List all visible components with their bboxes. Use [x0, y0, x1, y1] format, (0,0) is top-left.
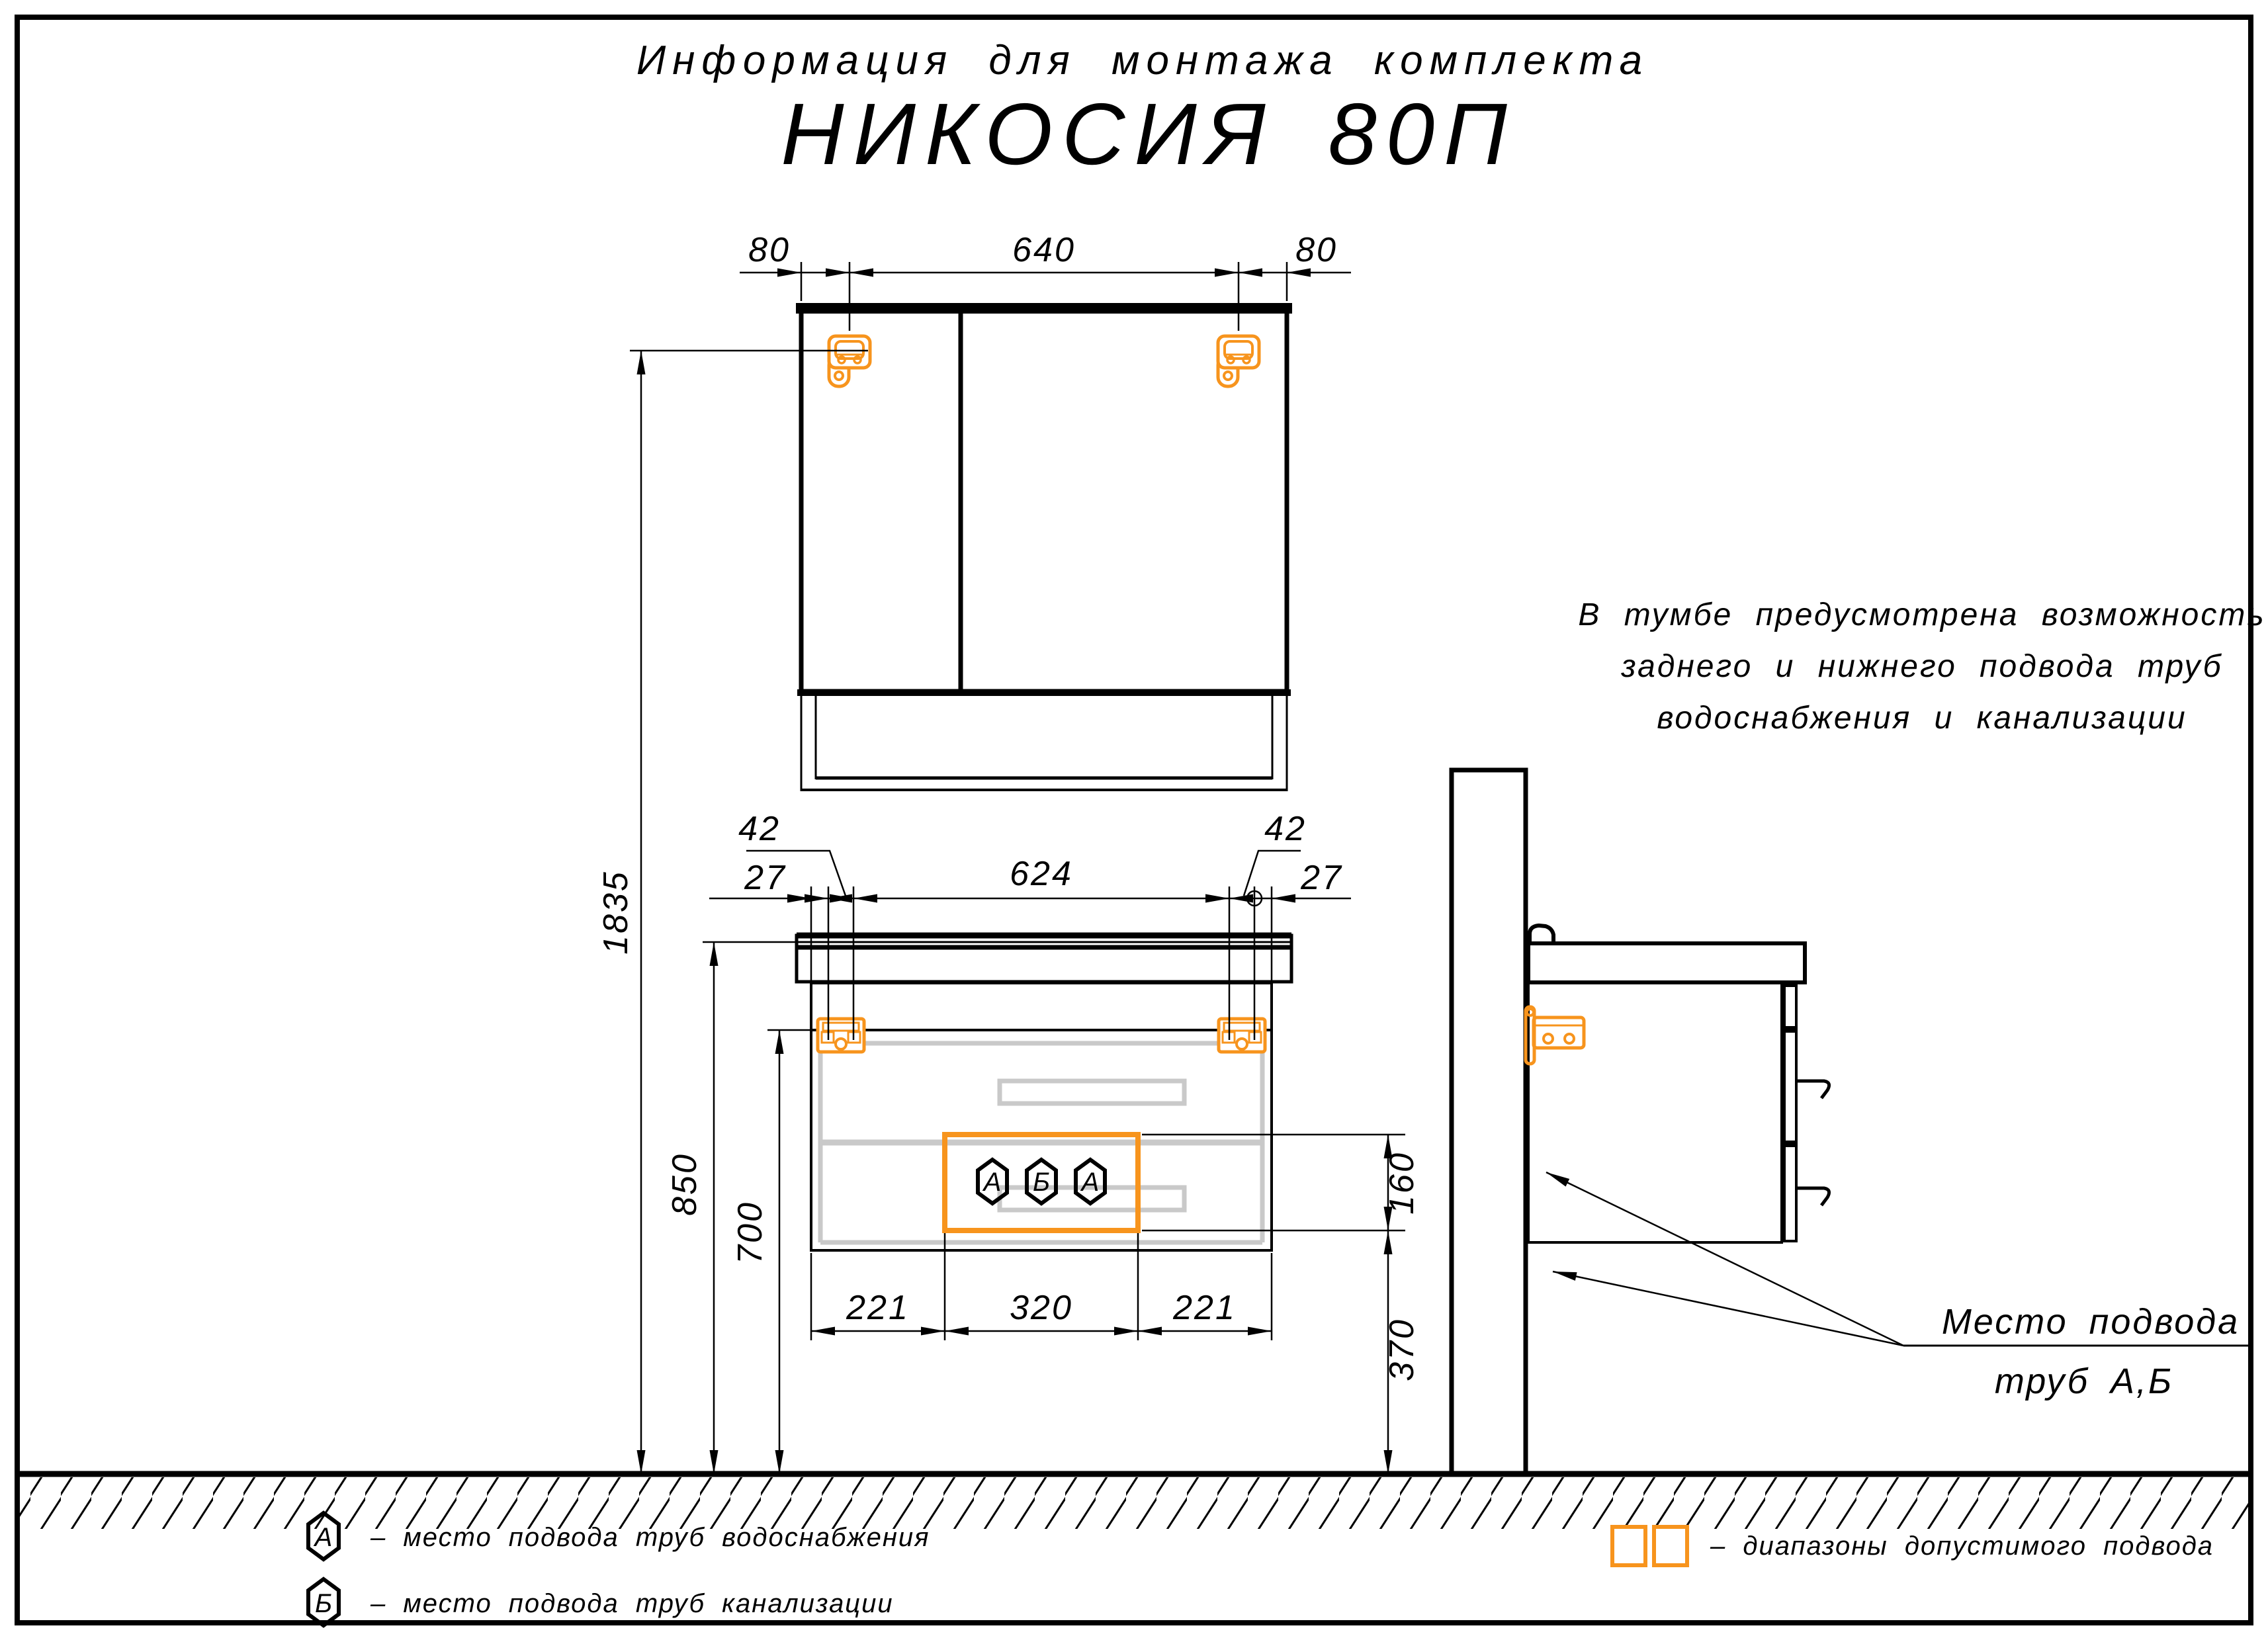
callout-line1: Место подвода	[1942, 1302, 2240, 1342]
dim-42-right: 42	[1264, 810, 1307, 848]
title-line1: Информация для монтажа комплекта	[636, 38, 1649, 83]
note-line1: В тумбе предусмотрена возможность	[1578, 597, 2265, 632]
dim-221-left: 221	[846, 1289, 910, 1327]
dim-42-left: 42	[738, 810, 781, 848]
dim-221-right: 221	[1172, 1289, 1237, 1327]
marker-hex-a2-label: А	[1080, 1168, 1100, 1197]
page-frame	[17, 17, 2251, 1623]
dim-700: 700	[731, 1201, 769, 1264]
dim-624: 624	[1010, 855, 1073, 893]
marker-hex-b-label: Б	[1033, 1168, 1050, 1197]
title-line2: НИКОСИЯ 80П	[781, 85, 1516, 183]
page-title: Информация для монтажа комплекта НИКОСИЯ…	[636, 38, 1649, 183]
floor-hatch	[17, 1477, 2251, 1529]
dim-370: 370	[1383, 1318, 1421, 1381]
legend-zones-text: – диапазоны допустимого подвода	[1710, 1532, 2214, 1561]
drawer-gap-bottom	[1784, 1141, 1796, 1147]
legend-hex-a-label: А	[314, 1523, 333, 1552]
dim-27-left: 27	[744, 859, 787, 897]
callout-line2: труб А,Б	[1995, 1361, 2173, 1401]
floor	[17, 1474, 2251, 1529]
marker-hex-a1-label: А	[982, 1168, 1002, 1197]
dim-850: 850	[666, 1152, 704, 1216]
drawing-page: Информация для монтажа комплекта НИКОСИЯ…	[0, 0, 2268, 1640]
dim-80-right: 80	[1295, 231, 1338, 269]
vanity-wall-bracket-icon	[818, 1019, 864, 1052]
dim-80-left: 80	[748, 231, 791, 269]
drawer-gap-top	[1784, 1026, 1796, 1033]
legend-hex-b-label: Б	[315, 1589, 332, 1618]
legend-sewer-text: – место подвода труб канализации	[370, 1589, 894, 1618]
dim-1835: 1835	[597, 870, 635, 955]
vanity-wall-bracket-icon	[1219, 1019, 1265, 1052]
dim-27-right: 27	[1300, 859, 1343, 897]
note-line3: водоснабжения и канализации	[1657, 701, 2187, 736]
note-line2: заднего и нижнего подвода труб	[1620, 649, 2222, 684]
dim-160: 160	[1383, 1151, 1421, 1215]
dim-320: 320	[1010, 1289, 1073, 1327]
note-block: В тумбе предусмотрена возможность заднег…	[1578, 597, 2265, 736]
legend-water-text: – место подвода труб водоснабжения	[370, 1523, 930, 1552]
dim-640: 640	[1012, 231, 1076, 269]
